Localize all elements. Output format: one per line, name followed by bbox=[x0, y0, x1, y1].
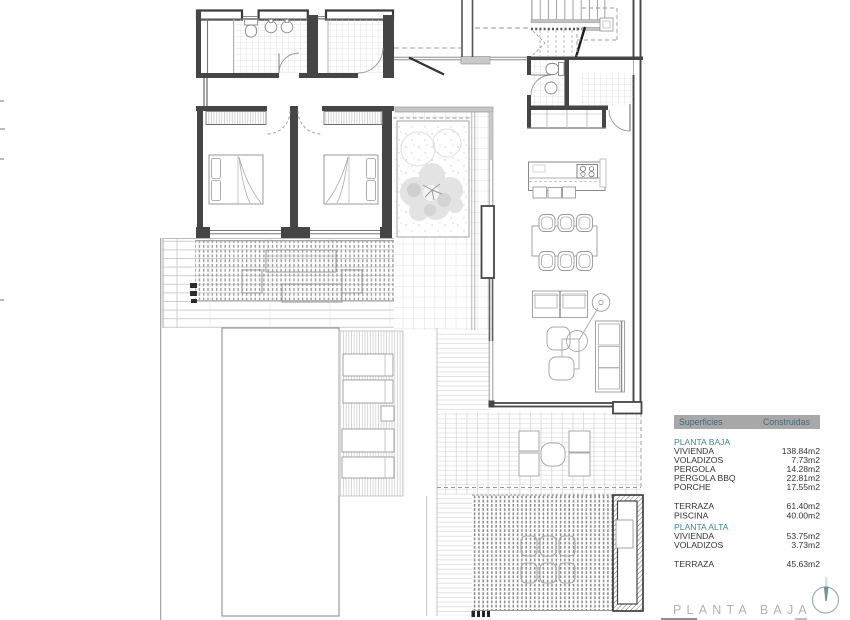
svg-text:TERRAZA: TERRAZA bbox=[674, 559, 714, 569]
svg-text:3.73m2: 3.73m2 bbox=[791, 540, 820, 550]
svg-text:Superficies: Superficies bbox=[679, 417, 723, 427]
svg-text:17.55m2: 17.55m2 bbox=[787, 482, 821, 492]
svg-text:45.63m2: 45.63m2 bbox=[787, 559, 821, 569]
svg-text:61.40m2: 61.40m2 bbox=[787, 501, 821, 511]
svg-text:40.00m2: 40.00m2 bbox=[787, 511, 821, 521]
svg-text:Construidas: Construidas bbox=[763, 417, 811, 427]
svg-text:PORCHE: PORCHE bbox=[674, 482, 711, 492]
svg-text:PLANTA BAJA: PLANTA BAJA bbox=[673, 603, 812, 617]
svg-text:TERRAZA: TERRAZA bbox=[674, 501, 714, 511]
svg-text:VOLADIZOS: VOLADIZOS bbox=[674, 540, 723, 550]
svg-text:PISCINA: PISCINA bbox=[674, 511, 709, 521]
